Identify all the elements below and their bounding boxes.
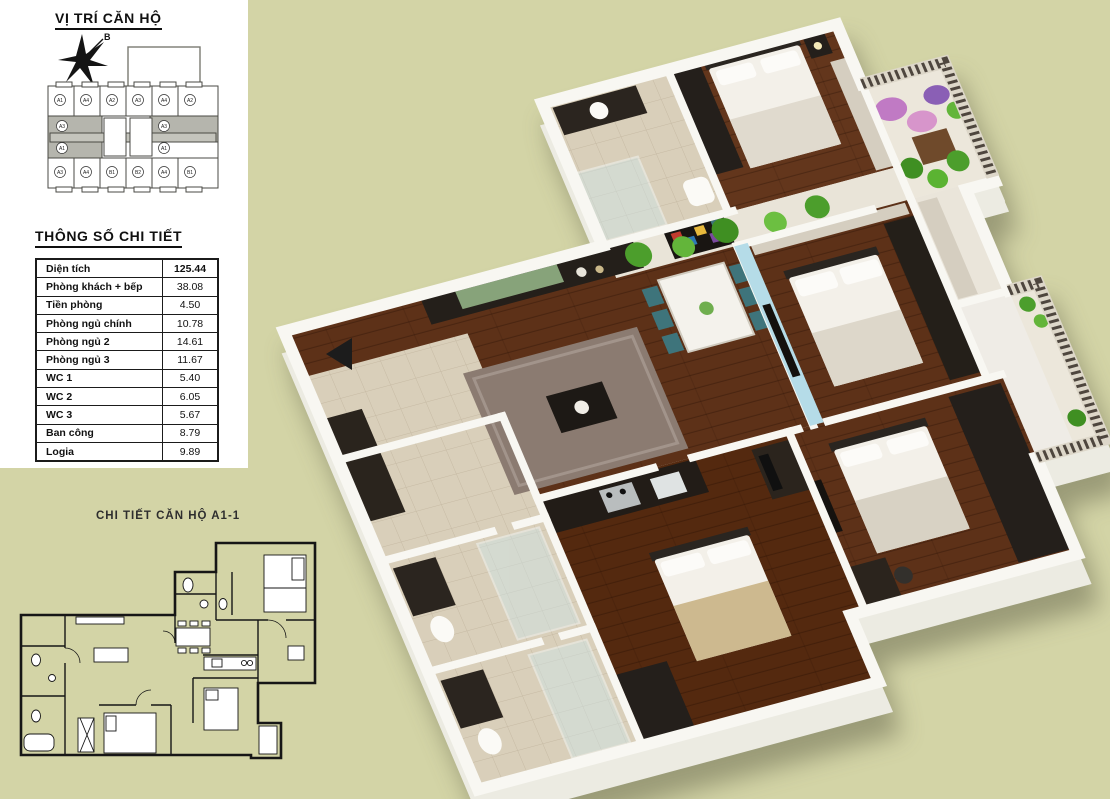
specs-title: THÔNG SỐ CHI TIẾT <box>35 228 182 248</box>
compass-north-label: B <box>104 32 111 42</box>
row-value: 5.67 <box>162 406 217 423</box>
row-label: Tiền phòng <box>37 299 162 311</box>
row-label: WC 1 <box>37 372 162 384</box>
row-value: 6.05 <box>162 388 217 405</box>
row-label: WC 2 <box>37 391 162 403</box>
compass-icon: B <box>58 32 111 86</box>
table-row: Tiền phòng 4.50 <box>37 297 217 315</box>
table-row: WC 2 6.05 <box>37 388 217 406</box>
row-label: Phòng ngủ 3 <box>37 354 162 366</box>
row-value: 14.61 <box>162 333 217 350</box>
row-label: Phòng khách + bếp <box>37 281 162 293</box>
svg-text:A1: A1 <box>57 98 63 104</box>
svg-text:A2: A2 <box>187 98 193 104</box>
detail-2d-floorplan <box>16 528 321 773</box>
row-label: Logia <box>37 446 162 458</box>
svg-text:B1: B1 <box>109 170 115 176</box>
svg-text:A4: A4 <box>83 170 89 176</box>
table-row: WC 3 5.67 <box>37 406 217 424</box>
table-row: Phòng ngủ chính 10.78 <box>37 315 217 333</box>
row-value: 11.67 <box>162 351 217 368</box>
svg-text:A1: A1 <box>161 146 167 152</box>
table-row: Logia 9.89 <box>37 443 217 460</box>
row-value: 125.44 <box>162 260 217 277</box>
svg-text:B1: B1 <box>187 170 193 176</box>
table-row: Ban công 8.79 <box>37 425 217 443</box>
row-label: Phòng ngủ chính <box>37 318 162 330</box>
table-row: Phòng khách + bếp 38.08 <box>37 278 217 296</box>
svg-text:A3: A3 <box>57 170 63 176</box>
row-label: Phòng ngủ 2 <box>37 336 162 348</box>
building-block <box>223 2 1110 789</box>
svg-text:A3: A3 <box>135 98 141 104</box>
table-row: Diện tích 125.44 <box>37 260 217 278</box>
detail-plan-title: CHI TIẾT CĂN HỘ A1-1 <box>96 510 240 522</box>
svg-text:A3: A3 <box>59 124 65 130</box>
row-value: 9.89 <box>162 443 217 460</box>
svg-text:A2: A2 <box>109 98 115 104</box>
building-keyplan: B A1 A4 A2 A3 A4 <box>30 30 230 200</box>
row-value: 38.08 <box>162 278 217 295</box>
svg-text:A4: A4 <box>161 98 167 104</box>
table-row: Phòng ngủ 2 14.61 <box>37 333 217 351</box>
table-row: WC 1 5.40 <box>37 370 217 388</box>
svg-text:A1: A1 <box>59 146 65 152</box>
location-title: VỊ TRÍ CĂN HỘ <box>55 10 162 30</box>
svg-text:A3: A3 <box>161 124 167 130</box>
svg-text:A4: A4 <box>83 98 89 104</box>
row-value: 5.40 <box>162 370 217 387</box>
row-value: 4.50 <box>162 297 217 314</box>
svg-text:A4: A4 <box>161 170 167 176</box>
specs-table: Diện tích 125.44 Phòng khách + bếp 38.08… <box>35 258 219 462</box>
row-value: 8.79 <box>162 425 217 442</box>
row-label: WC 3 <box>37 409 162 421</box>
row-value: 10.78 <box>162 315 217 332</box>
svg-text:B2: B2 <box>135 170 141 176</box>
table-row: Phòng ngủ 3 11.67 <box>37 351 217 369</box>
row-label: Ban công <box>37 427 162 439</box>
row-label: Diện tích <box>37 263 162 275</box>
